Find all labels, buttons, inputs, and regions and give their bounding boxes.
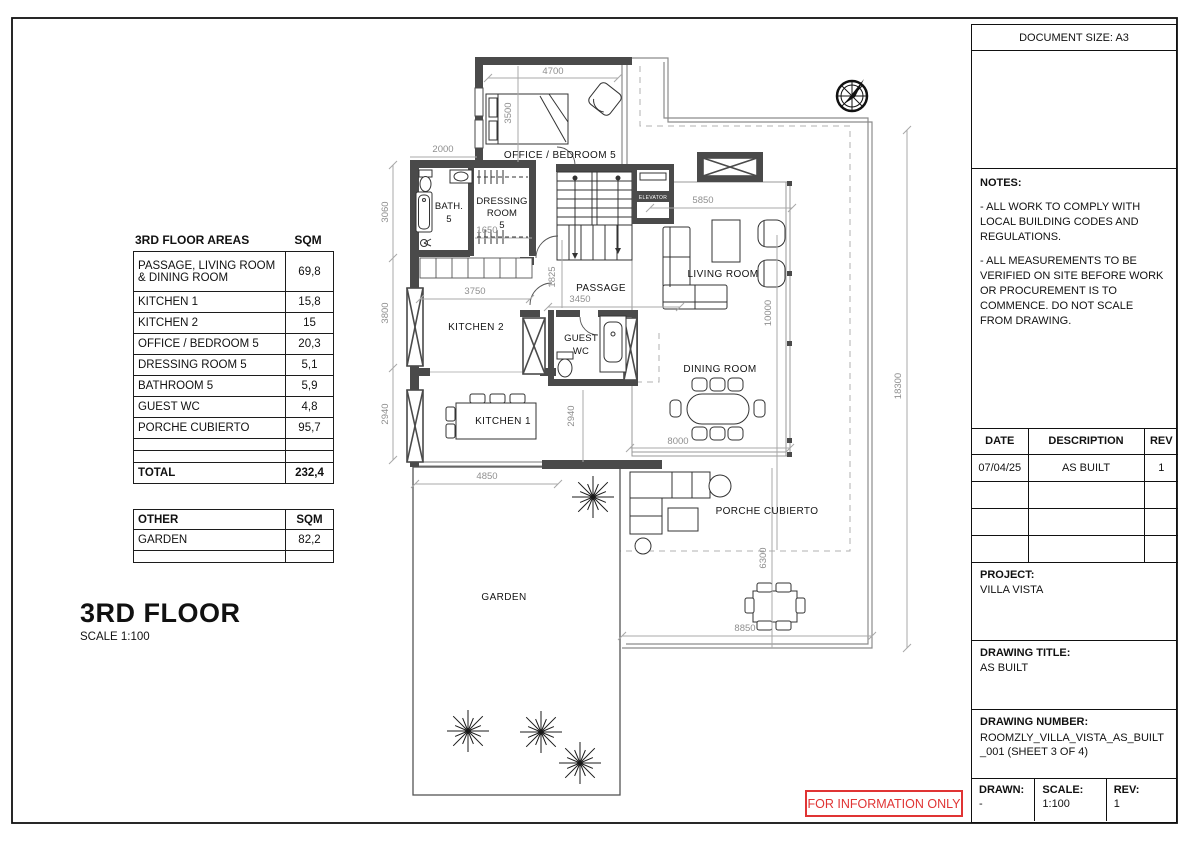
dim-office-width: 4700	[542, 66, 563, 77]
living-window	[697, 152, 763, 182]
rev-date	[972, 535, 1028, 562]
dim-dressing-width: 1650	[476, 225, 497, 236]
rev-label: REV:	[1114, 784, 1169, 796]
other-header: OTHER	[134, 510, 286, 530]
guestwc-fixtures	[557, 316, 626, 377]
area-row-value	[286, 439, 334, 451]
north-arrow-icon	[837, 79, 867, 111]
room-label-guestwc: GUEST	[564, 333, 598, 344]
dim-porch-depth: 6300	[758, 547, 769, 568]
left-wall-column-2	[407, 390, 423, 462]
room-label-dressing: DRESSING	[476, 196, 527, 207]
drawing-title-box: DRAWING TITLE: AS BUILT	[972, 641, 1176, 710]
drawing-number-box: DRAWING NUMBER: ROOMZLY_VILLA_VISTA_AS_B…	[972, 710, 1176, 779]
staircase	[557, 172, 632, 260]
area-row-value: 69,8	[286, 252, 334, 292]
room-label-kitchen1: KITCHEN 1	[475, 416, 531, 427]
area-row-label: KITCHEN 2	[134, 313, 286, 334]
dim-kitchen2-width: 3750	[464, 286, 485, 297]
rev-col-description: DESCRIPTION	[1028, 429, 1144, 454]
toilet-icon	[419, 170, 432, 192]
other-table-panel: OTHER SQM GARDEN 82,2	[133, 509, 334, 563]
dim-office-depth: 3500	[503, 102, 514, 123]
dining-table	[687, 394, 749, 424]
room-label-dining: DINING ROOM	[683, 364, 756, 375]
rev-number: 1	[1144, 454, 1178, 481]
table-row-total: TOTAL 232,4	[134, 463, 334, 484]
bathtub-icon	[416, 192, 432, 232]
table-row: BATHROOM 5 5,9	[134, 376, 334, 397]
other-row-value: 82,2	[286, 530, 334, 551]
drawn-label: DRAWN:	[979, 784, 1027, 796]
areas-table-panel: 3RD FLOOR AREAS SQM PASSAGE, LIVING ROOM…	[133, 233, 334, 484]
dim-kitchen1-width: 4850	[476, 471, 497, 482]
rev-col-rev: REV	[1144, 429, 1178, 454]
drawn-scale-rev-row: DRAWN: - SCALE: 1:100 REV: 1	[972, 779, 1176, 821]
terrace-boundary	[622, 58, 872, 648]
dining-set	[670, 378, 765, 440]
room-label-bath: BATH.	[435, 201, 463, 212]
dim-living-depth: 10000	[763, 300, 774, 326]
room-label-dressing-3: 5	[499, 220, 504, 231]
rev-value: 1	[1114, 798, 1169, 810]
room-label-passage: PASSAGE	[576, 283, 626, 294]
area-row-value: 4,8	[286, 397, 334, 418]
drawn-value: -	[979, 798, 1027, 810]
scale-value: 1:100	[1042, 798, 1098, 810]
other-unit-header: SQM	[286, 510, 334, 530]
rev-date: 07/04/25	[972, 454, 1028, 481]
area-row-value	[286, 451, 334, 463]
other-row-label: GARDEN	[134, 530, 286, 551]
rev-date	[972, 508, 1028, 535]
note-item: - ALL WORK TO COMPLY WITH LOCAL BUILDING…	[980, 200, 1168, 245]
room-label-guestwc-2: WC	[573, 346, 589, 357]
room-label-bath-2: 5	[446, 214, 451, 225]
tree-icon	[572, 476, 614, 518]
elevator: ELEVATOR	[632, 164, 674, 224]
room-label-kitchen2: KITCHEN 2	[448, 322, 504, 333]
revision-header-row: DATE DESCRIPTION REV	[972, 429, 1178, 454]
room-label-dressing-2: ROOM	[487, 208, 517, 219]
scale-box: SCALE: 1:100	[1035, 779, 1106, 821]
total-label: TOTAL	[134, 463, 286, 484]
area-row-label: BATHROOM 5	[134, 376, 286, 397]
guestwc-column-left	[523, 318, 545, 374]
logo-box	[972, 51, 1176, 169]
area-row-value: 20,3	[286, 334, 334, 355]
dim-terrace-width: 8850	[734, 623, 755, 634]
armchair	[758, 260, 785, 287]
armchair	[758, 220, 785, 247]
room-label-office: OFFICE / BEDROOM 5	[504, 150, 616, 161]
other-row-label	[134, 551, 286, 563]
bed	[486, 94, 568, 144]
tree-icon	[447, 710, 489, 752]
rev-date	[972, 481, 1028, 508]
revision-table: DATE DESCRIPTION REV 07/04/25 AS BUILT 1	[972, 429, 1178, 563]
planter	[635, 538, 651, 554]
dim-kitchen1-depth: 2940	[566, 405, 577, 426]
floor-title: 3RD FLOOR SCALE 1:100	[80, 598, 241, 643]
garden-outline	[413, 467, 620, 795]
table-row-empty	[134, 551, 334, 563]
notes-box: NOTES: - ALL WORK TO COMPLY WITH LOCAL B…	[972, 169, 1176, 429]
areas-table-unit: SQM	[284, 233, 332, 247]
note-item: - ALL MEASUREMENTS TO BE VERIFIED ON SIT…	[980, 254, 1168, 328]
desk-chair	[587, 81, 623, 117]
side-table	[709, 475, 731, 497]
tree-icon	[520, 711, 562, 753]
table-header-row: OTHER SQM	[134, 510, 334, 530]
table-row: KITCHEN 2 15	[134, 313, 334, 334]
ottoman	[668, 508, 698, 531]
vanity-icon	[600, 316, 626, 372]
area-row-value: 15	[286, 313, 334, 334]
rev-description	[1028, 535, 1144, 562]
area-row-label: OFFICE / BEDROOM 5	[134, 334, 286, 355]
area-row-value: 95,7	[286, 418, 334, 439]
toilet-icon	[557, 352, 573, 377]
dim-living-width: 5850	[692, 195, 713, 206]
dim-dining-width: 8000	[667, 436, 688, 447]
room-label-porch: PORCHE CUBIERTO	[716, 506, 819, 517]
areas-table-title: 3RD FLOOR AREAS	[135, 233, 249, 247]
area-row-label	[134, 439, 286, 451]
room-label-garden: GARDEN	[481, 592, 526, 603]
sink-icon	[450, 170, 472, 183]
areas-table: PASSAGE, LIVING ROOM & DINING ROOM 69,8 …	[133, 251, 334, 484]
drawing-title-label: DRAWING TITLE:	[980, 647, 1168, 659]
area-row-label: GUEST WC	[134, 397, 286, 418]
dim-left-bottom: 2940	[380, 403, 391, 424]
other-row-value	[286, 551, 334, 563]
floor-scale: SCALE 1:100	[80, 631, 241, 643]
other-table: OTHER SQM GARDEN 82,2	[133, 509, 334, 563]
rev-box: REV: 1	[1107, 779, 1176, 821]
revision-row-empty	[972, 508, 1178, 535]
area-row-value: 5,9	[286, 376, 334, 397]
kitchen2-counter	[420, 258, 532, 278]
document-size: DOCUMENT SIZE: A3	[972, 25, 1176, 51]
dim-terrace-height: 18300	[893, 373, 904, 399]
area-row-value: 15,8	[286, 292, 334, 313]
scale-label: SCALE:	[1042, 784, 1098, 796]
table-row: PASSAGE, LIVING ROOM & DINING ROOM 69,8	[134, 252, 334, 292]
floor-name: 3RD FLOOR	[80, 598, 241, 629]
tree-icon	[559, 742, 601, 784]
project-box: PROJECT: VILLA VISTA	[972, 563, 1176, 641]
dim-left-mid: 3800	[380, 302, 391, 323]
dim-passage-width: 3450	[569, 294, 590, 305]
table-row: GARDEN 82,2	[134, 530, 334, 551]
sliding-door	[419, 462, 542, 466]
rev-description	[1028, 508, 1144, 535]
rev-number	[1144, 535, 1178, 562]
table-row: OFFICE / BEDROOM 5 20,3	[134, 334, 334, 355]
area-row-label: PORCHE CUBIERTO	[134, 418, 286, 439]
table-row: PORCHE CUBIERTO 95,7	[134, 418, 334, 439]
area-row-label: KITCHEN 1	[134, 292, 286, 313]
room-label-living: LIVING ROOM	[687, 269, 758, 280]
coffee-table	[712, 220, 740, 262]
drawn-box: DRAWN: -	[972, 779, 1035, 821]
rev-description: AS BUILT	[1028, 454, 1144, 481]
area-row-value: 5,1	[286, 355, 334, 376]
rev-description	[1028, 481, 1144, 508]
living-furniture	[663, 220, 785, 309]
dim-passage-depth: 1825	[547, 266, 558, 287]
rev-number	[1144, 481, 1178, 508]
title-block: DOCUMENT SIZE: A3 NOTES: - ALL WORK TO C…	[971, 24, 1177, 823]
table-row-empty	[134, 439, 334, 451]
project-label: PROJECT:	[980, 569, 1168, 581]
notes-title: NOTES:	[980, 176, 1168, 191]
area-row-label	[134, 451, 286, 463]
drawing-number-label: DRAWING NUMBER:	[980, 716, 1168, 728]
information-only-stamp: FOR INFORMATION ONLY	[805, 790, 963, 817]
revision-row-empty	[972, 535, 1178, 562]
left-wall-column-1	[407, 288, 423, 366]
rev-col-date: DATE	[972, 429, 1028, 454]
table-row-empty	[134, 451, 334, 463]
rev-number	[1144, 508, 1178, 535]
project-value: VILLA VISTA	[980, 584, 1168, 596]
table-row: KITCHEN 1 15,8	[134, 292, 334, 313]
area-row-label: PASSAGE, LIVING ROOM & DINING ROOM	[134, 252, 286, 292]
revision-row: 07/04/25 AS BUILT 1	[972, 454, 1178, 481]
table-row: GUEST WC 4,8	[134, 397, 334, 418]
table-row: DRESSING ROOM 5 5,1	[134, 355, 334, 376]
dim-left-top: 3060	[380, 201, 391, 222]
shower-icon	[421, 239, 432, 247]
total-value: 232,4	[286, 463, 334, 484]
elevator-label: ELEVATOR	[639, 195, 667, 201]
drawing-number-value: ROOMZLY_VILLA_VISTA_AS_BUILT_001 (SHEET …	[980, 731, 1168, 760]
area-row-label: DRESSING ROOM 5	[134, 355, 286, 376]
drawing-title-value: AS BUILT	[980, 662, 1168, 674]
dim-bath-offset: 2000	[432, 144, 453, 155]
revision-row-empty	[972, 481, 1178, 508]
